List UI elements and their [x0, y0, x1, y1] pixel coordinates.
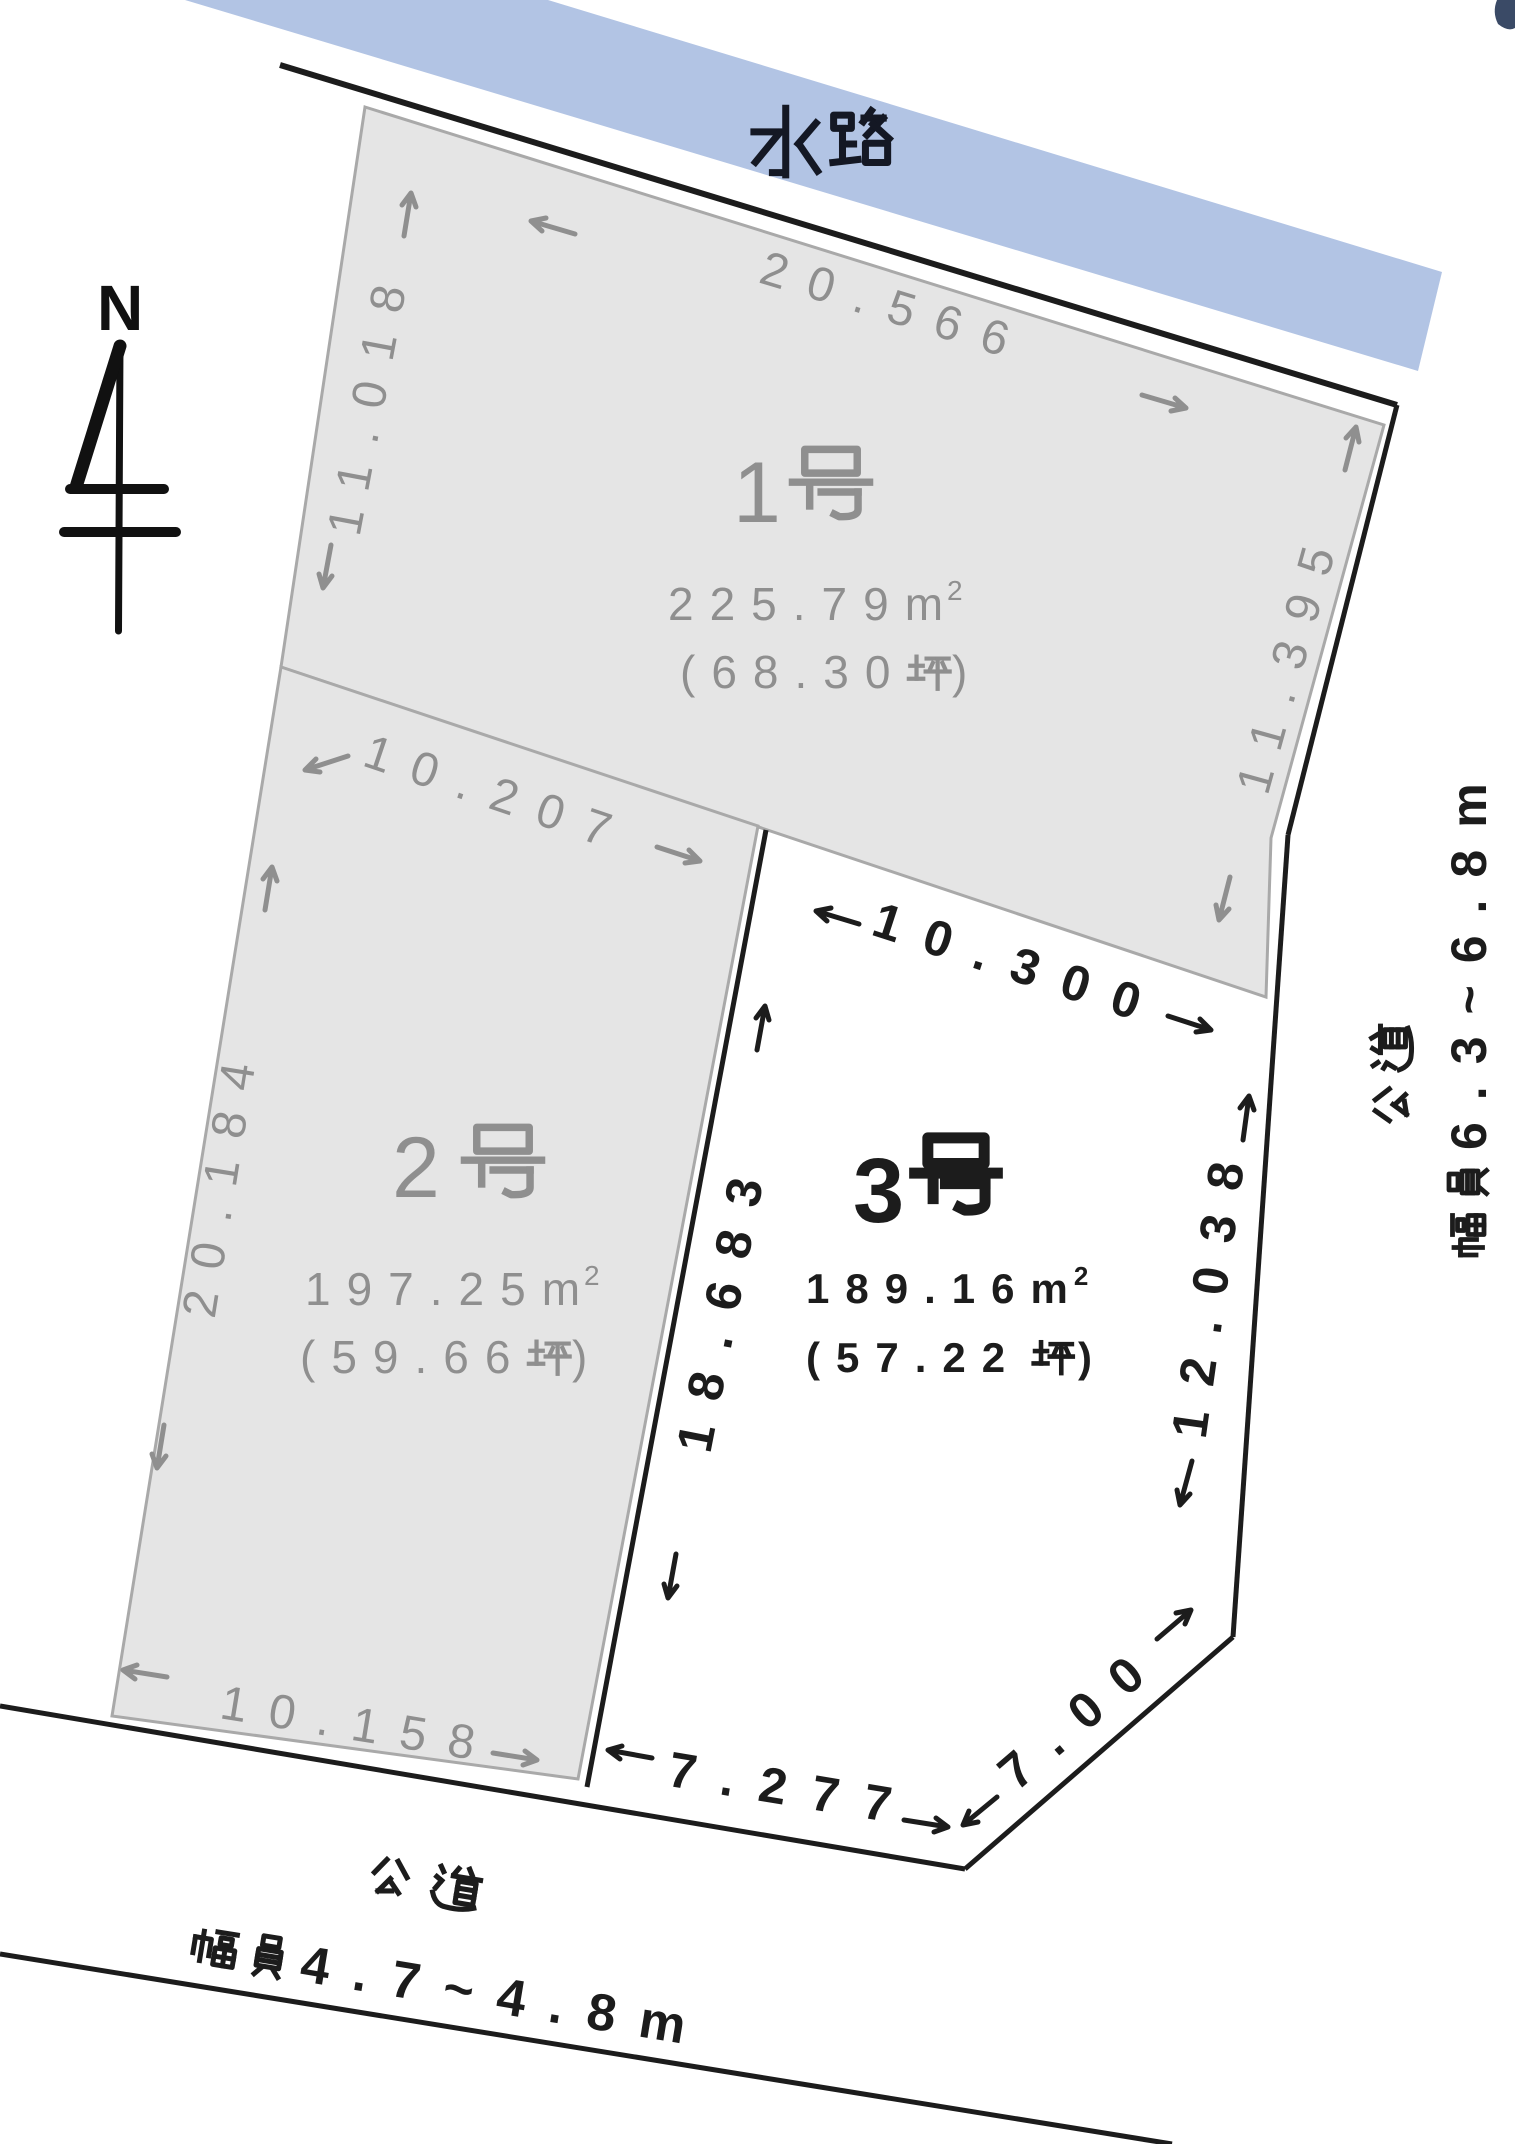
svg-text:): )	[572, 1331, 587, 1383]
svg-text:N: N	[97, 272, 143, 344]
svg-text:): )	[952, 646, 967, 698]
svg-text:(57.22: (57.22	[806, 1334, 1021, 1381]
svg-text:): )	[1078, 1334, 1092, 1381]
svg-text:6.3~6.8m: 6.3~6.8m	[1441, 761, 1497, 1150]
svg-text:197.25m2: 197.25m2	[305, 1260, 616, 1315]
svg-text:3: 3	[853, 1140, 904, 1242]
svg-text:189.16m2: 189.16m2	[806, 1261, 1104, 1312]
svg-text:1: 1	[733, 445, 781, 541]
svg-text:(59.66: (59.66	[300, 1331, 526, 1383]
svg-text:2: 2	[392, 1120, 440, 1216]
svg-text:225.79m2: 225.79m2	[668, 575, 979, 630]
svg-text:(68.30: (68.30	[680, 646, 906, 698]
